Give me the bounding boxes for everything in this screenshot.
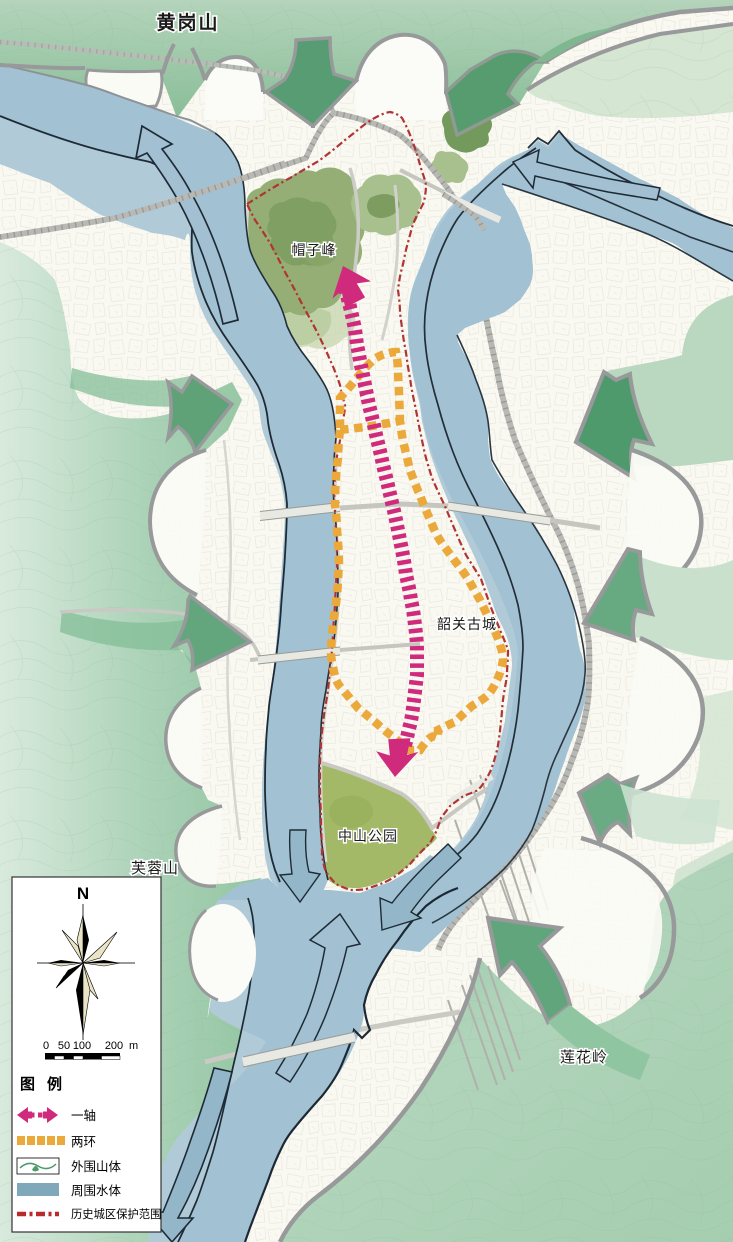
svg-text:莲花岭: 莲花岭 <box>560 1049 608 1066</box>
svg-text:帽子峰: 帽子峰 <box>292 242 337 258</box>
svg-text:外围山体: 外围山体 <box>71 1160 122 1174</box>
svg-text:图例: 图例 <box>20 1075 74 1093</box>
svg-text:m: m <box>129 1040 138 1052</box>
svg-text:一轴: 一轴 <box>71 1108 96 1123</box>
svg-text:N: N <box>77 884 89 903</box>
svg-text:50: 50 <box>58 1040 70 1052</box>
svg-text:历史城区保护范围: 历史城区保护范围 <box>71 1207 161 1221</box>
svg-text:两环: 两环 <box>71 1135 96 1149</box>
svg-text:100: 100 <box>73 1040 91 1052</box>
svg-text:中山公园: 中山公园 <box>338 828 398 844</box>
svg-text:0: 0 <box>43 1040 49 1052</box>
svg-text:黄岗山: 黄岗山 <box>156 11 219 34</box>
svg-text:芙蓉山: 芙蓉山 <box>131 860 179 877</box>
svg-text:200: 200 <box>105 1040 123 1052</box>
svg-text:周围水体: 周围水体 <box>71 1184 122 1198</box>
svg-text:韶关古城: 韶关古城 <box>437 616 497 632</box>
